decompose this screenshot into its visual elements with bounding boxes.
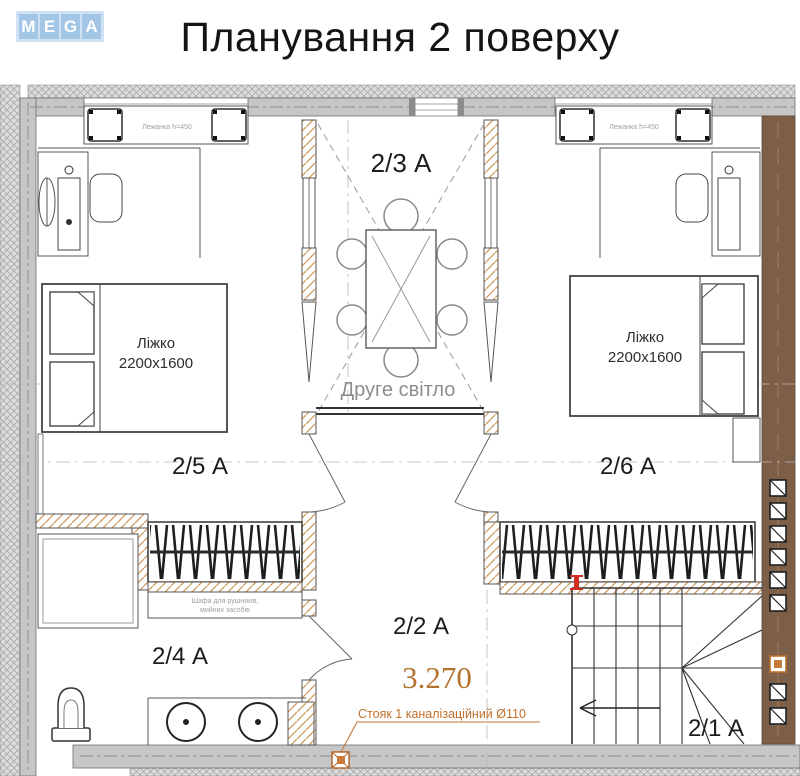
bedroom-left: Лежанка h=450 Ліжко 2200x1600: [38, 106, 248, 518]
room-label-corridor: 2/2 А: [393, 613, 449, 640]
page-title: Планування 2 поверху: [0, 14, 800, 61]
shower-tray: [38, 534, 138, 628]
wardrobe-right: [484, 522, 762, 594]
void-label: Друге світло: [341, 379, 456, 401]
chair-left: [90, 174, 122, 222]
riser-note: Стояк 1 каналізаційний Ø110: [358, 707, 526, 721]
wall-bottom: [73, 745, 800, 768]
bed-right-label: Ліжко: [626, 329, 664, 346]
cabinet-label-line2: мийних засобів: [200, 606, 250, 614]
wardrobe-left: [148, 522, 302, 592]
door-leaf-left: [302, 302, 316, 382]
stair-direction-arrow: [580, 700, 660, 716]
floor-plan-drawing: 2/3 А Друге світло Лежанка h=450: [0, 82, 800, 776]
room-label-bedroom-right: 2/6 А: [600, 453, 656, 480]
double-sink-counter: [148, 698, 306, 745]
level-mark: 3.270: [402, 660, 472, 695]
toilet: [52, 688, 90, 741]
room-label-hall: 2/3 А: [371, 148, 432, 178]
newel-post: [567, 625, 577, 635]
radiator-left: [38, 434, 43, 518]
vent-square-marked: [770, 656, 786, 672]
door-leaf-right: [484, 302, 498, 382]
void-railing: [316, 408, 484, 414]
wall-bottom-hatch: [130, 768, 800, 776]
bed-right-size: 2200x1600: [608, 349, 682, 366]
bedroom-right: Лежанка h=450 Ліжко 2200x1600 2/6 А: [556, 106, 760, 480]
bed-right: [570, 276, 758, 416]
wall-right-wood: [762, 116, 795, 744]
vent-squares: [770, 480, 786, 724]
wall-left-hatch: [0, 85, 20, 776]
nightstand-right: [733, 418, 760, 462]
dining-table: [337, 199, 467, 377]
wall-top-hatch: [28, 85, 795, 98]
desk-left: [38, 148, 200, 258]
cabinet-label-line1: Шафа для рушників,: [192, 597, 259, 605]
desk-right: [600, 148, 760, 258]
cabinet-towels: Шафа для рушників, мийних засобів: [148, 592, 302, 618]
door-bathroom: [309, 616, 352, 680]
floor-plan-page: M E G A Планування 2 поверху: [0, 0, 800, 776]
room-label-bathroom: 2/4 А: [152, 643, 208, 670]
chair-right: [676, 174, 708, 222]
bed-left-size: 2200x1600: [119, 355, 193, 372]
window-top-center: [409, 98, 464, 116]
door-bedroom-left: [309, 434, 345, 512]
door-bedroom-right: [455, 434, 491, 512]
hall-void: 2/3 А Друге світло: [302, 120, 498, 414]
room-label-bedroom-left: 2/5 А: [172, 453, 228, 480]
room-label-stairs: 2/1 А: [688, 715, 744, 742]
bench-label-right: Лежанка h=450: [609, 124, 659, 131]
stairs: 2/1 А: [567, 576, 762, 744]
bench-label-left: Лежанка h=450: [142, 124, 192, 131]
bed-left-label: Ліжко: [137, 335, 175, 352]
